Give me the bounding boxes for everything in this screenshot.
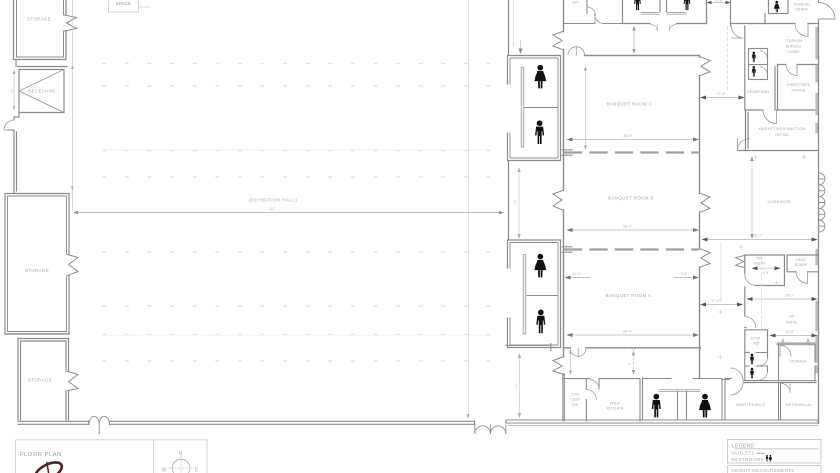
svg-text:STORAGE: STORAGE — [27, 17, 51, 22]
svg-text:SUITE: SUITE — [786, 320, 798, 324]
svg-text:FLOOR PLAN: FLOOR PLAN — [20, 452, 62, 458]
svg-text:E: E — [195, 468, 199, 473]
svg-text:80'-9": 80'-9" — [623, 225, 633, 229]
svg-text:ION: ION — [572, 403, 579, 407]
svg-text:40'-7": 40'-7" — [753, 234, 763, 238]
svg-text:MAINTENANCE: MAINTENANCE — [736, 403, 766, 407]
svg-text:BOARD: BOARD — [795, 263, 808, 267]
svg-text:BANQUET ROOM C: BANQUET ROOM C — [606, 102, 652, 107]
svg-text:160': 160' — [269, 207, 276, 211]
svg-text:OFFICE: OFFICE — [775, 133, 789, 137]
svg-text:RESTROOMS: RESTROOMS — [732, 457, 764, 462]
svg-text:TOURISM: TOURISM — [785, 39, 802, 43]
svg-text:BUREAU: BUREAU — [786, 45, 802, 49]
svg-text:12': 12' — [10, 88, 14, 93]
svg-text:KIT.: KIT. — [573, 0, 580, 5]
svg-text:W: W — [162, 468, 167, 473]
svg-text:RECEPTION: RECEPTION — [747, 90, 769, 94]
svg-text:MECHANICAL: MECHANICAL — [786, 403, 813, 407]
svg-text:VIP: VIP — [788, 315, 795, 319]
svg-text:17'-8": 17'-8" — [716, 92, 726, 96]
svg-text:BANQUET ROOM A: BANQUET ROOM A — [606, 293, 652, 298]
svg-text:ENTRY: ENTRY — [753, 261, 766, 265]
svg-text:N: N — [179, 451, 183, 457]
svg-text:17'-0": 17'-0" — [711, 299, 721, 303]
svg-text:STORAGE: STORAGE — [789, 359, 807, 363]
svg-text:DIRECTOR'S: DIRECTOR'S — [787, 83, 810, 87]
svg-text:CORRIDOR: CORRIDOR — [767, 200, 790, 204]
svg-text:BUREAU: BUREAU — [794, 3, 810, 7]
svg-text:OFFICE: OFFICE — [792, 89, 806, 93]
svg-text:9'-6": 9'-6" — [681, 272, 689, 276]
svg-text:STOR.: STOR. — [751, 337, 762, 341]
svg-text:VIP: VIP — [757, 257, 763, 261]
svg-text:PREP: PREP — [610, 402, 621, 406]
svg-text:MARKETING/FUNCTION: MARKETING/FUNCTION — [759, 127, 806, 131]
svg-text:80'-9": 80'-9" — [623, 330, 633, 334]
svg-text:10'-9": 10'-9" — [785, 330, 795, 334]
svg-text:HEAD: HEAD — [796, 258, 806, 262]
svg-text:80'-9": 80'-9" — [623, 134, 633, 138]
svg-text:12': 12' — [514, 384, 518, 389]
svg-text:10'-6": 10'-6" — [714, 0, 723, 3]
svg-text:4'-9": 4'-9" — [763, 271, 771, 275]
svg-text:OUTLETS: OUTLETS — [732, 451, 755, 456]
svg-text:28'-2": 28'-2" — [785, 294, 795, 298]
svg-text:KITCHEN: KITCHEN — [607, 407, 624, 411]
svg-text:LEGEND: LEGEND — [732, 443, 754, 449]
svg-text:HEIGHT MEASUREMENTS: HEIGHT MEASUREMENTS — [732, 468, 795, 473]
svg-text:BANQUET ROOM B: BANQUET ROOM B — [608, 196, 654, 201]
svg-text:9': 9' — [628, 362, 632, 365]
svg-text:STORAGE: STORAGE — [28, 378, 52, 383]
svg-text:CON: CON — [571, 393, 579, 397]
svg-text:SPACE: SPACE — [116, 1, 131, 6]
svg-text:(EXHIBITION HALL): (EXHIBITION HALL) — [249, 198, 298, 203]
svg-text:12': 12' — [514, 200, 518, 205]
svg-text:CESS: CESS — [570, 398, 580, 402]
svg-text:RECEIVING: RECEIVING — [28, 89, 56, 94]
svg-text:STORAGE: STORAGE — [25, 268, 49, 273]
svg-text:LOBBY: LOBBY — [787, 50, 800, 54]
svg-text:12'-2": 12'-2" — [573, 272, 582, 276]
svg-text:STAFF: STAFF — [796, 8, 808, 12]
